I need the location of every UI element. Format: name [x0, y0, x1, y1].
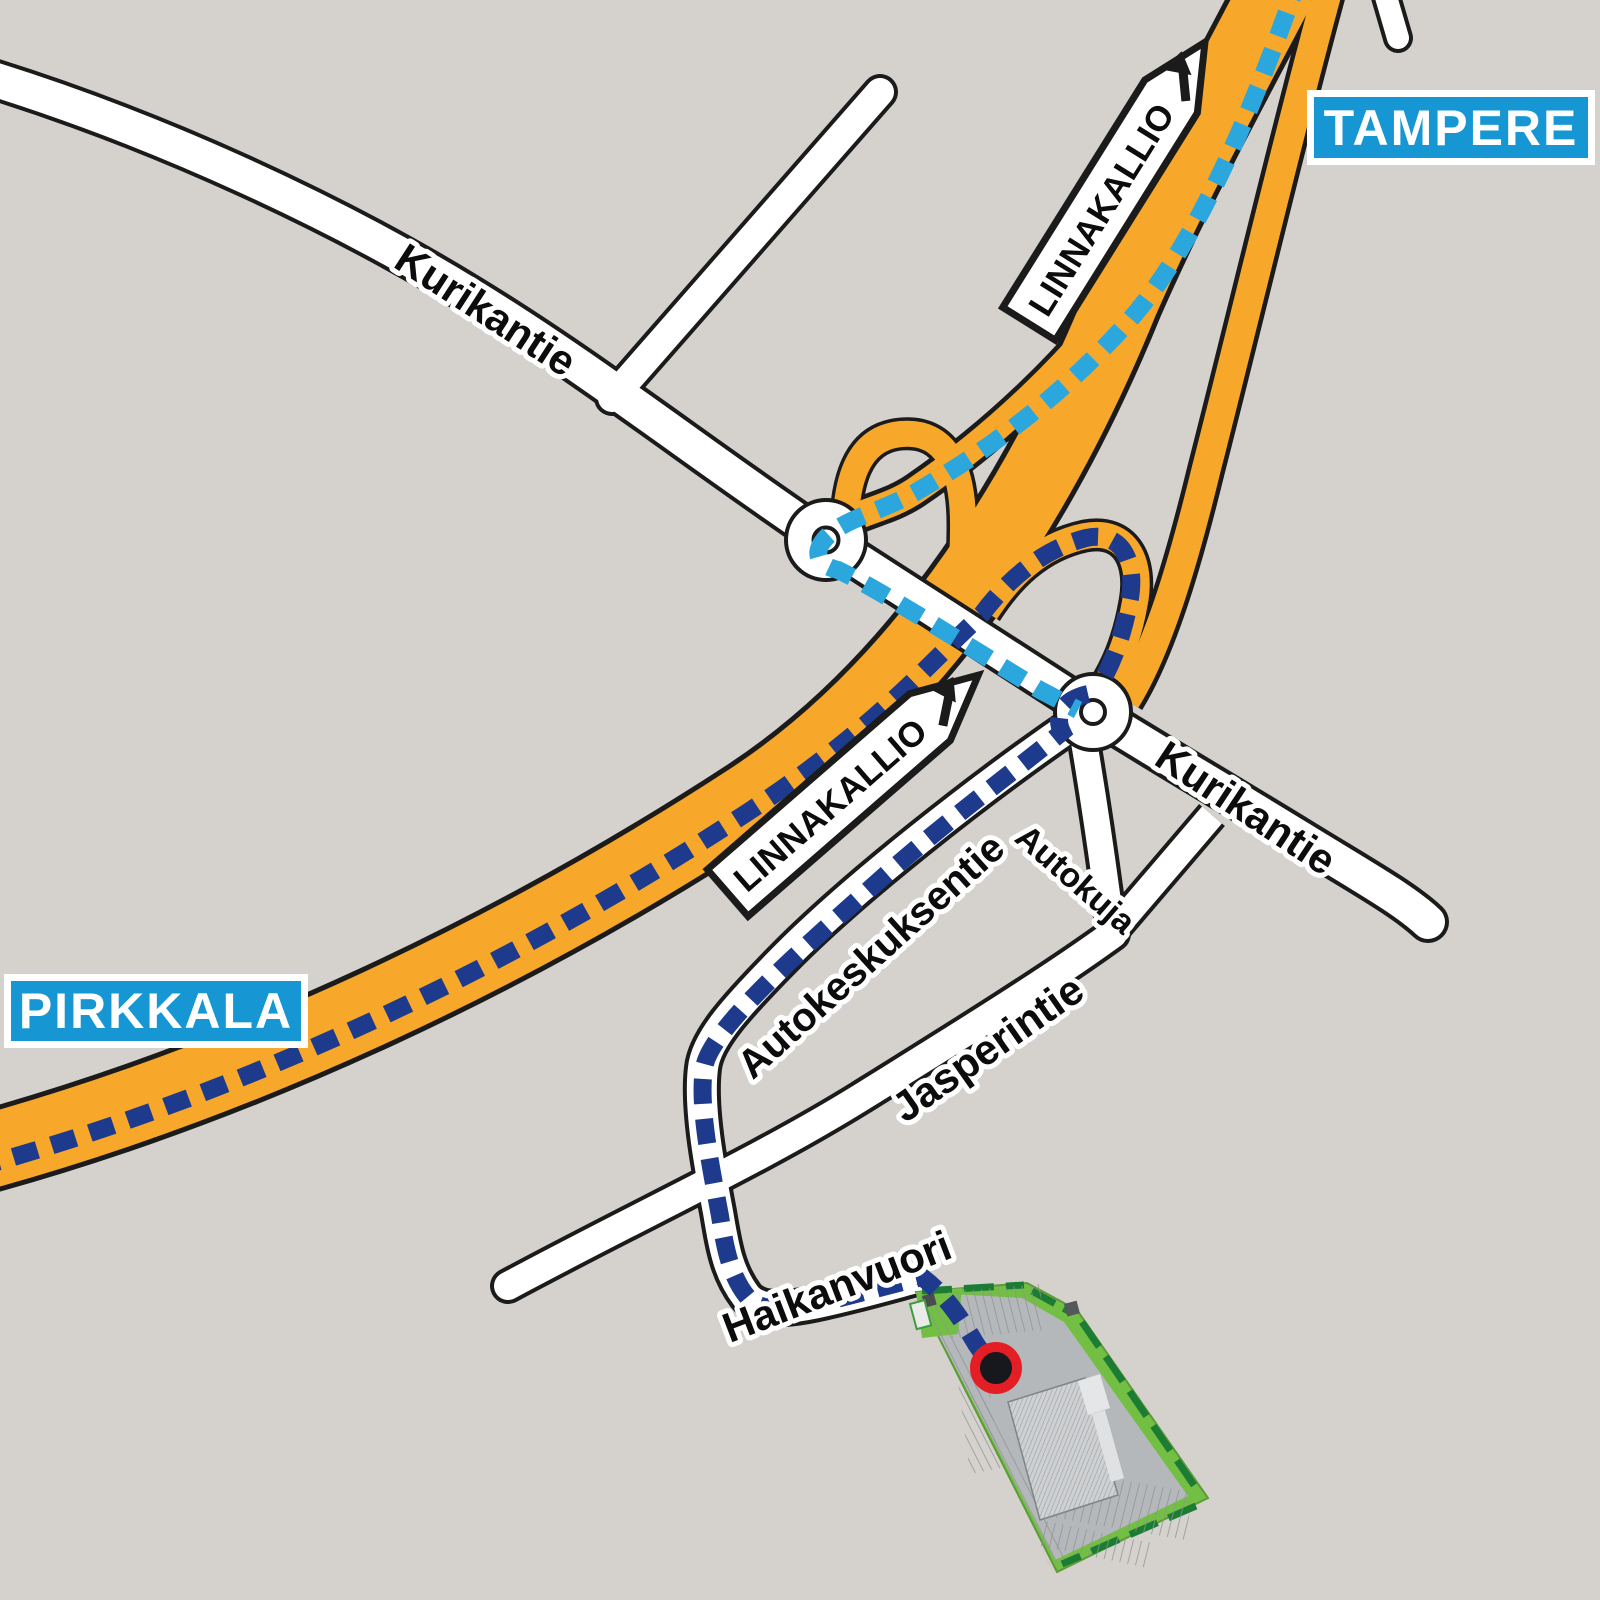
pirkkala-badge-label: PIRKKALA: [19, 983, 293, 1039]
map-canvas: Kurikantie Kurikantie Autokeskuksentie A…: [0, 0, 1600, 1600]
city-badge-pirkkala: PIRKKALA: [4, 974, 308, 1048]
directions-map: Kurikantie Kurikantie Autokeskuksentie A…: [0, 0, 1600, 1600]
tampere-badge-label: TAMPERE: [1324, 100, 1579, 156]
destination-marker: [975, 1347, 1017, 1389]
city-badge-tampere: TAMPERE: [1307, 90, 1595, 165]
road-stub-north: [1384, 0, 1398, 38]
